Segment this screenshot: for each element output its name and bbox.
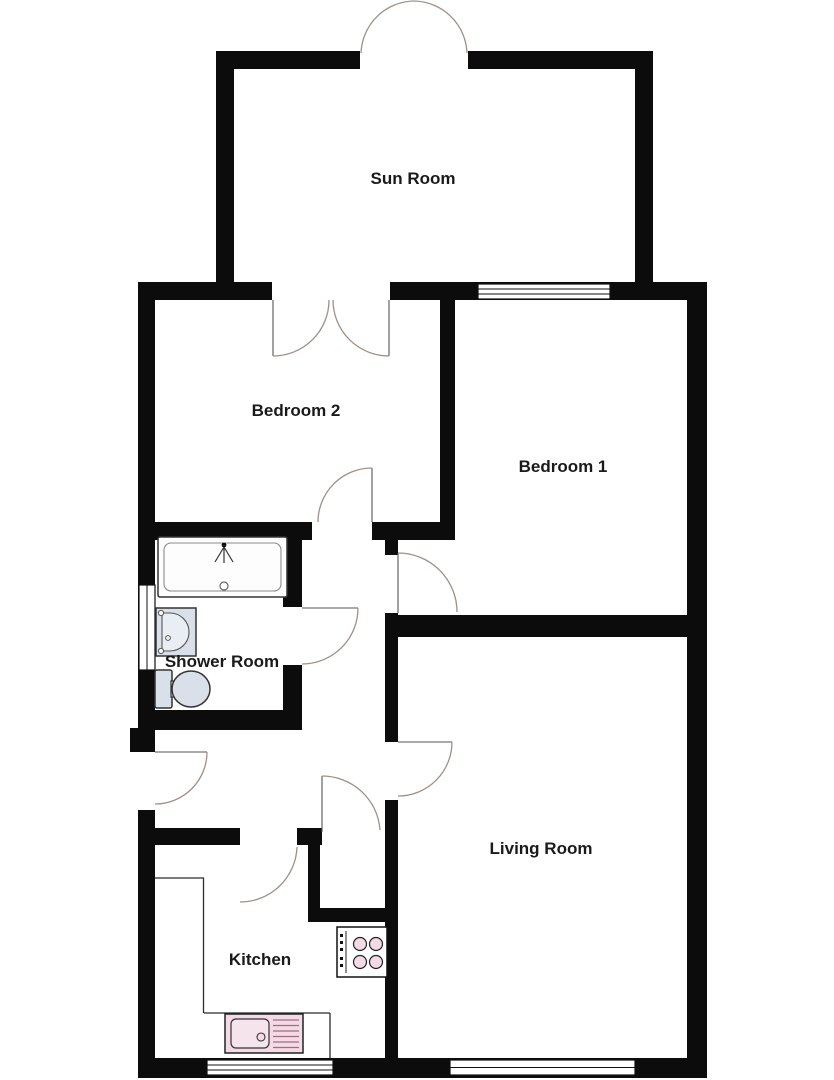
room-label-bedroom-1: Bedroom 1: [519, 457, 608, 476]
shower-room-window: [139, 585, 155, 670]
wall-segment: [385, 613, 398, 742]
living-room-door: [398, 742, 452, 796]
wall-segment: [138, 810, 155, 1078]
sink-with-drainer-icon: [225, 1014, 303, 1053]
wall-segment: [385, 522, 398, 555]
wall-segment: [308, 845, 320, 913]
wall-segment: [687, 282, 707, 1078]
sun-room-french-doors: [361, 1, 467, 53]
toilet-icon: [155, 670, 210, 708]
entrance-door: [155, 752, 207, 804]
floorplan-drawing: Sun Room Bedroom 2 Bedroom 1 Shower Room…: [0, 0, 834, 1080]
wall-segment: [155, 828, 240, 845]
wall-segment: [216, 51, 360, 69]
kitchen-window: [207, 1060, 333, 1075]
bedroom-1-window: [478, 284, 610, 299]
bath-with-shower-icon: [158, 537, 287, 597]
bedroom-2-door: [318, 468, 372, 522]
wall-segment: [440, 300, 455, 540]
wall-segment: [468, 51, 653, 69]
kitchen-door: [240, 847, 297, 902]
room-label-kitchen: Kitchen: [229, 950, 291, 969]
bedroom-1-door: [398, 553, 457, 613]
room-label-bedroom-2: Bedroom 2: [252, 401, 341, 420]
wall-segment: [635, 51, 653, 282]
four-ring-hob-icon: [337, 927, 387, 977]
wall-segment: [138, 282, 155, 752]
wall-segment: [130, 728, 155, 752]
living-room-window: [450, 1060, 635, 1075]
hall-cupboard-door: [322, 776, 380, 832]
doors: [155, 1, 467, 902]
wall-segment: [155, 710, 302, 730]
shower-room-door: [302, 608, 358, 664]
room-label-sun-room: Sun Room: [371, 169, 456, 188]
wall-segment: [308, 908, 398, 922]
room-label-shower-room: Shower Room: [165, 652, 279, 671]
wall-segment: [138, 282, 272, 300]
wash-basin-icon: [156, 608, 196, 656]
wall-segment: [297, 828, 322, 845]
room-label-living-room: Living Room: [490, 839, 593, 858]
shower-room-fixtures: [155, 537, 287, 708]
floorplan-canvas: Sun Room Bedroom 2 Bedroom 1 Shower Room…: [0, 0, 834, 1080]
wall-segment: [398, 615, 707, 637]
wall-segment: [216, 51, 234, 282]
sun-room-to-bedroom2-double-doors: [273, 300, 389, 356]
wall-segment: [372, 522, 455, 540]
